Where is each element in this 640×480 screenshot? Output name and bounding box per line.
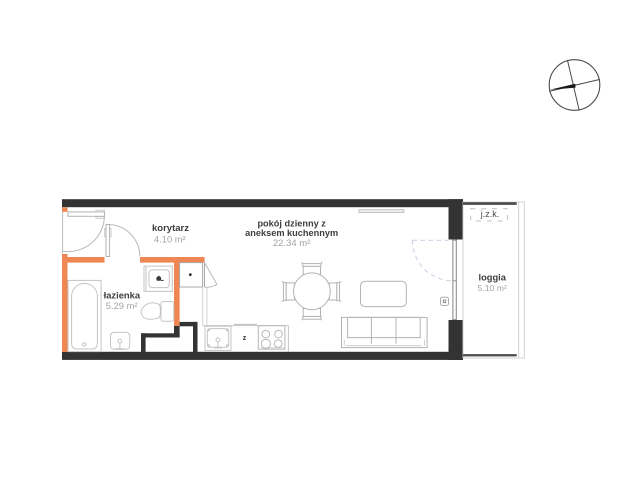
- svg-text:aneksem kuchennym: aneksem kuchennym: [245, 228, 338, 238]
- svg-text:j.z.k.: j.z.k.: [480, 209, 500, 219]
- svg-text:5.10 m²: 5.10 m²: [477, 283, 507, 293]
- svg-text:korytarz: korytarz: [152, 223, 189, 234]
- svg-text:loggia: loggia: [479, 272, 507, 282]
- svg-text:łazienka: łazienka: [104, 290, 141, 301]
- svg-text:5.29 m²: 5.29 m²: [106, 301, 138, 311]
- svg-text:pokój dzienny z: pokój dzienny z: [257, 218, 326, 228]
- svg-text:22.34 m²: 22.34 m²: [273, 238, 311, 249]
- svg-text:4.10 m²: 4.10 m²: [154, 234, 186, 244]
- svg-text:z: z: [243, 335, 247, 342]
